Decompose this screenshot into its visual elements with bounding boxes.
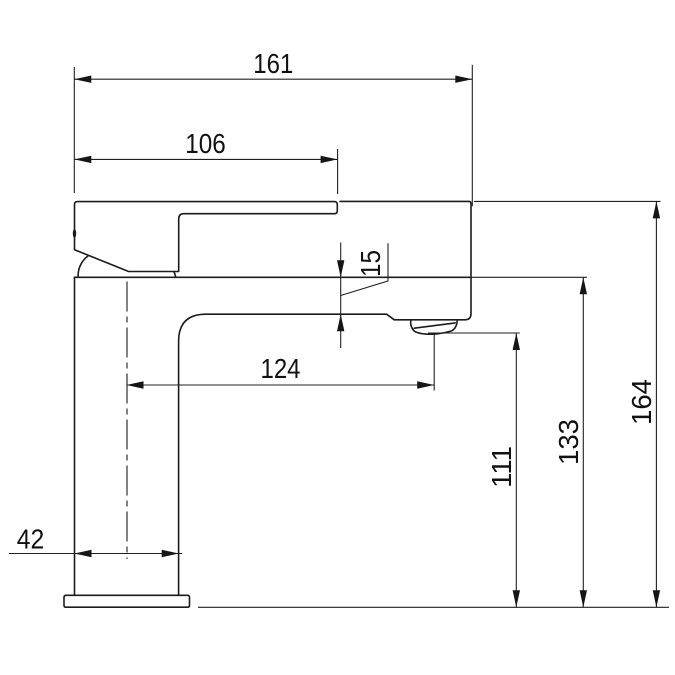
- svg-text:15: 15: [355, 250, 386, 277]
- svg-text:161: 161: [253, 48, 293, 79]
- svg-text:124: 124: [261, 353, 301, 384]
- svg-text:42: 42: [17, 523, 45, 554]
- svg-text:106: 106: [185, 128, 226, 159]
- svg-text:111: 111: [486, 446, 517, 488]
- svg-text:164: 164: [626, 379, 657, 425]
- svg-text:133: 133: [553, 419, 584, 465]
